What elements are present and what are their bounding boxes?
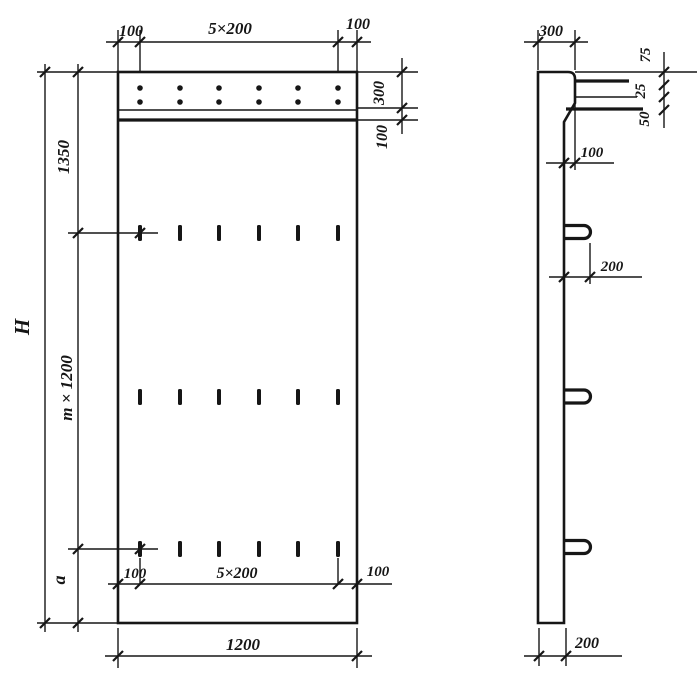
dim-side-top-width: 300: [538, 23, 563, 40]
anchor-dots: [137, 85, 341, 105]
front-left-dimension: H 1350 m × 1200 a: [10, 64, 158, 632]
side-ledge-chain-dimension: 75 25 50: [575, 47, 697, 128]
ledge-bars: [566, 81, 643, 109]
dim-loop-length: 200: [600, 259, 624, 275]
slot-marks: [138, 225, 340, 557]
dim-lower-segment: a: [49, 576, 69, 585]
dim-top-mid: 5×200: [208, 19, 252, 38]
front-right-dimension: 300 100: [357, 58, 418, 149]
dim-band-height: 300: [371, 81, 388, 106]
side-top-dimension: 300: [524, 23, 588, 70]
panel-front-outline: [118, 72, 357, 623]
dim-ledge-first: 75: [638, 47, 654, 63]
dim-upper-segment: 1350: [54, 140, 73, 175]
front-width-dimension: 1200: [105, 628, 372, 668]
dim-overall-width: 1200: [226, 635, 261, 654]
side-ledge-offset-dimension: 100: [546, 104, 614, 170]
dim-groove-height: 100: [374, 125, 391, 149]
dim-overall-height: H: [10, 318, 34, 336]
dim-ledge-third: 50: [637, 111, 653, 127]
dim-ledge-second: 25: [633, 83, 649, 100]
front-inner-bottom-dimension: 100 5×200 100: [108, 558, 392, 589]
front-top-dimension: 100 5×200 100: [106, 16, 371, 71]
blueprint-page: 100 5×200 100 300 100: [0, 0, 700, 700]
dim-inner-left: 100: [124, 566, 147, 582]
side-bottom-dimension: 200: [524, 628, 622, 666]
dim-base-thickness: 200: [574, 635, 599, 652]
dim-top-left: 100: [119, 23, 143, 40]
dim-inner-mid: 5×200: [216, 565, 257, 582]
dim-middle-segment: m × 1200: [57, 355, 76, 421]
front-view: [118, 72, 357, 623]
dim-inner-right: 100: [367, 564, 390, 580]
panel-drawing: 100 5×200 100 300 100: [0, 0, 700, 700]
dim-ledge-offset: 100: [581, 145, 604, 161]
dim-top-right: 100: [346, 16, 370, 33]
